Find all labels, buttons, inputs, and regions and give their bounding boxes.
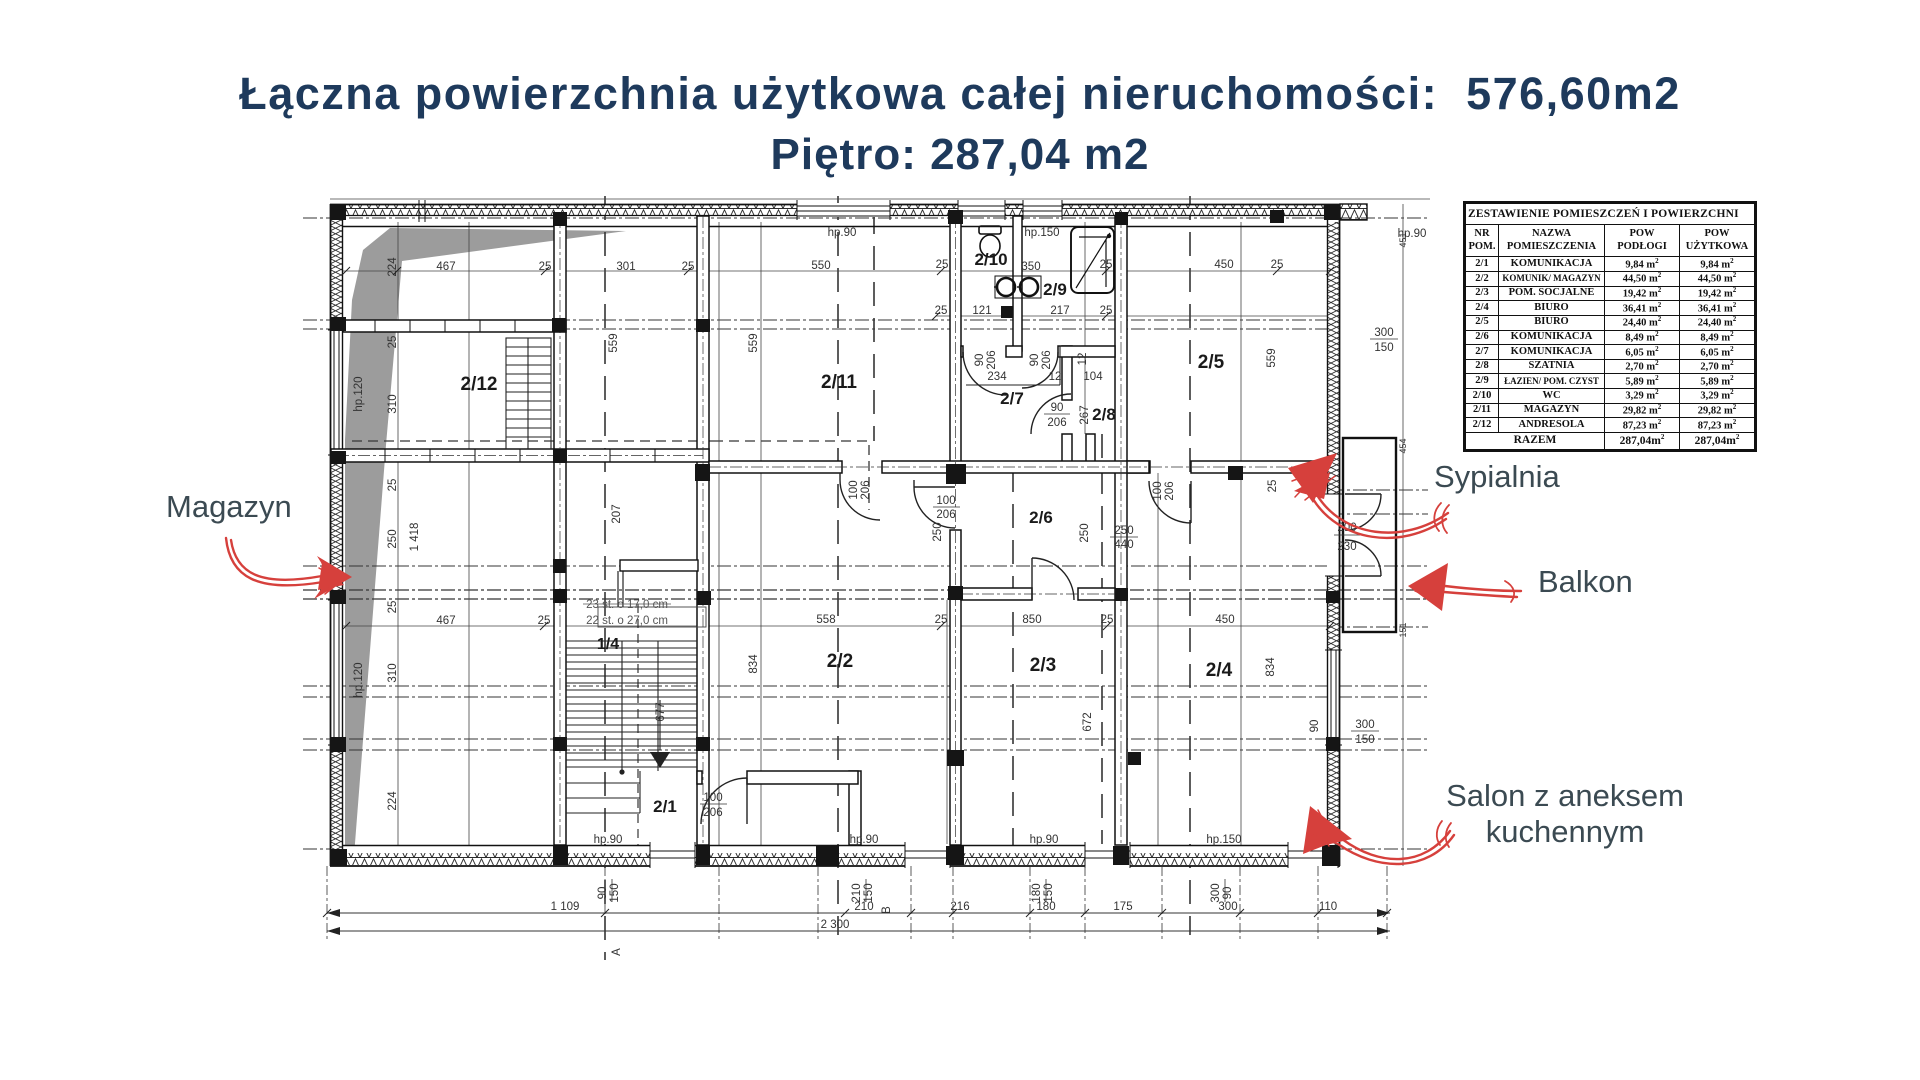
- svg-text:25: 25: [936, 259, 949, 271]
- svg-text:110: 110: [1319, 901, 1337, 913]
- svg-text:hp.150: hp.150: [1024, 227, 1059, 239]
- svg-text:250: 250: [1114, 525, 1133, 537]
- svg-text:467: 467: [436, 615, 455, 627]
- svg-text:25: 25: [387, 336, 399, 349]
- svg-text:25: 25: [387, 601, 399, 614]
- svg-text:2/4: 2/4: [1206, 660, 1233, 681]
- svg-text:hp.120: hp.120: [353, 662, 365, 697]
- svg-text:hp.90: hp.90: [850, 834, 879, 846]
- svg-text:310: 310: [387, 394, 399, 413]
- svg-text:2/9: 2/9: [1043, 280, 1067, 299]
- svg-text:206: 206: [703, 807, 722, 819]
- svg-text:217: 217: [1050, 305, 1069, 317]
- svg-text:121: 121: [972, 305, 991, 317]
- svg-text:100: 100: [703, 792, 722, 804]
- svg-text:150: 150: [1355, 734, 1374, 746]
- svg-text:2/3: 2/3: [1030, 655, 1056, 676]
- svg-text:25: 25: [1271, 259, 1284, 271]
- svg-text:206: 206: [1041, 350, 1053, 369]
- svg-text:104: 104: [1083, 371, 1103, 383]
- svg-text:1/4: 1/4: [597, 636, 619, 653]
- svg-text:2 300: 2 300: [821, 919, 850, 931]
- svg-text:90: 90: [1051, 402, 1064, 414]
- svg-text:25: 25: [387, 479, 399, 492]
- svg-text:2/8: 2/8: [1092, 405, 1116, 424]
- svg-text:2/12: 2/12: [461, 374, 498, 395]
- svg-text:250: 250: [1079, 523, 1091, 542]
- svg-text:151: 151: [1398, 622, 1408, 637]
- svg-text:90: 90: [597, 887, 609, 900]
- svg-text:451: 451: [1398, 232, 1408, 247]
- svg-text:25: 25: [538, 615, 551, 627]
- svg-text:224: 224: [387, 257, 399, 277]
- svg-text:25: 25: [1100, 259, 1113, 271]
- svg-text:12: 12: [1049, 371, 1062, 383]
- svg-text:175: 175: [1113, 901, 1132, 913]
- svg-text:25: 25: [935, 614, 948, 626]
- svg-text:2/5: 2/5: [1198, 352, 1225, 373]
- svg-text:25: 25: [1100, 305, 1113, 317]
- svg-text:90: 90: [1222, 887, 1234, 900]
- svg-text:300: 300: [1210, 883, 1222, 902]
- svg-text:230: 230: [1337, 541, 1356, 553]
- svg-text:206: 206: [936, 509, 955, 521]
- svg-text:558: 558: [816, 614, 835, 626]
- svg-text:1 418: 1 418: [409, 523, 421, 552]
- svg-text:2/11: 2/11: [821, 372, 857, 393]
- svg-text:180: 180: [1031, 883, 1043, 902]
- svg-text:2/6: 2/6: [1029, 508, 1053, 527]
- svg-text:25: 25: [1101, 614, 1114, 626]
- svg-text:834: 834: [748, 654, 760, 674]
- svg-text:559: 559: [608, 333, 620, 352]
- svg-text:210: 210: [851, 883, 863, 902]
- svg-text:440: 440: [1114, 539, 1133, 551]
- svg-text:677: 677: [655, 702, 667, 721]
- svg-text:267: 267: [1079, 405, 1091, 424]
- svg-text:206: 206: [1047, 417, 1066, 429]
- svg-text:250: 250: [932, 522, 944, 541]
- svg-text:150: 150: [1374, 342, 1393, 354]
- svg-text:450: 450: [1214, 259, 1233, 271]
- svg-text:310: 310: [387, 663, 399, 682]
- svg-text:100: 100: [936, 495, 955, 507]
- svg-text:hp.90: hp.90: [594, 834, 623, 846]
- svg-text:1 109: 1 109: [551, 901, 580, 913]
- svg-text:206: 206: [986, 350, 998, 369]
- svg-text:hp.150: hp.150: [1206, 834, 1241, 846]
- svg-text:150: 150: [609, 883, 621, 902]
- svg-text:300: 300: [1355, 719, 1374, 731]
- svg-text:B: B: [881, 906, 893, 914]
- svg-text:550: 550: [811, 260, 830, 272]
- svg-text:22 st. o 27,0 cm: 22 st. o 27,0 cm: [586, 615, 668, 627]
- svg-text:100: 100: [1152, 481, 1164, 500]
- svg-text:216: 216: [950, 901, 969, 913]
- svg-text:234: 234: [987, 371, 1007, 383]
- svg-text:150: 150: [863, 883, 875, 902]
- svg-text:467: 467: [436, 261, 455, 273]
- svg-text:100: 100: [848, 480, 860, 499]
- svg-text:90: 90: [1029, 354, 1041, 367]
- svg-text:559: 559: [1266, 348, 1278, 367]
- svg-text:559: 559: [748, 333, 760, 352]
- svg-text:300: 300: [1374, 327, 1393, 339]
- svg-text:206: 206: [860, 480, 872, 499]
- svg-text:12: 12: [1077, 353, 1089, 366]
- svg-text:224: 224: [387, 791, 399, 811]
- svg-text:hp.120: hp.120: [353, 376, 365, 411]
- svg-text:90: 90: [1309, 720, 1321, 733]
- svg-text:834: 834: [1265, 657, 1277, 677]
- svg-text:A: A: [611, 948, 623, 956]
- svg-text:23 st. o 17,0 cm: 23 st. o 17,0 cm: [586, 599, 668, 611]
- svg-text:454: 454: [1398, 438, 1408, 453]
- svg-text:850: 850: [1022, 614, 1041, 626]
- svg-text:hp.90: hp.90: [1030, 834, 1059, 846]
- svg-text:250: 250: [387, 529, 399, 548]
- svg-text:2/1: 2/1: [653, 797, 677, 816]
- svg-text:350: 350: [1021, 261, 1040, 273]
- svg-text:90: 90: [974, 354, 986, 367]
- svg-text:672: 672: [1082, 712, 1094, 731]
- svg-text:25: 25: [1267, 480, 1279, 493]
- svg-text:301: 301: [616, 261, 635, 273]
- svg-text:hp.90: hp.90: [828, 227, 857, 239]
- svg-text:450: 450: [1215, 614, 1234, 626]
- svg-text:206: 206: [1164, 481, 1176, 500]
- svg-text:2/2: 2/2: [827, 651, 853, 672]
- svg-text:207: 207: [611, 504, 623, 523]
- svg-text:150: 150: [1043, 883, 1055, 902]
- svg-text:2/7: 2/7: [1000, 389, 1024, 408]
- svg-text:2/10: 2/10: [974, 250, 1007, 269]
